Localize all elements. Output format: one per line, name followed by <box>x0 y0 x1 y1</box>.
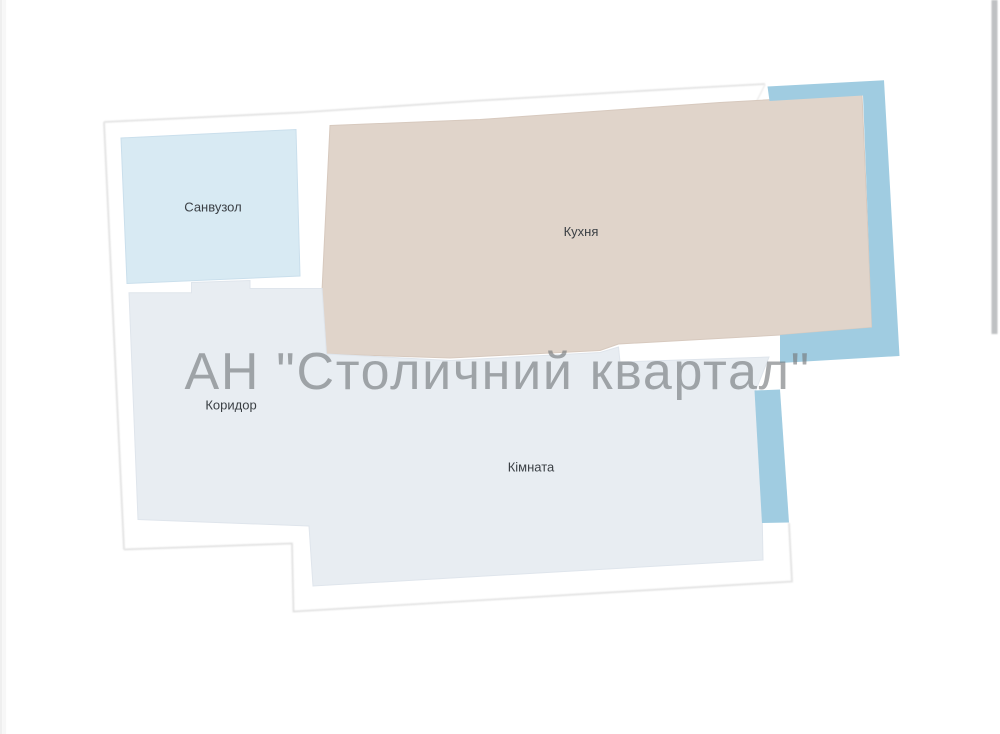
svg-text:Санвузол: Санвузол <box>184 200 241 215</box>
svg-text:Кімната: Кімната <box>508 460 555 475</box>
svg-text:Коридор: Коридор <box>205 398 256 413</box>
svg-text:Кухня: Кухня <box>564 224 599 239</box>
svg-text:АН "Столичний квартал": АН "Столичний квартал" <box>185 343 811 401</box>
